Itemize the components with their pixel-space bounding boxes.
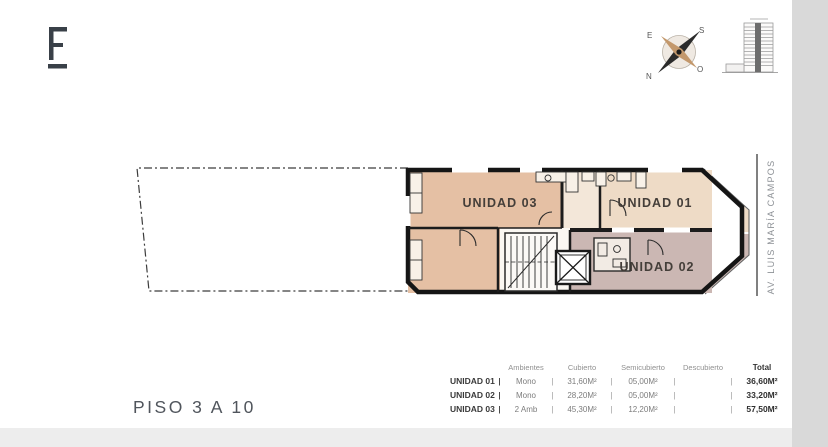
separator: | [606,405,617,414]
unit-02-area [570,230,712,293]
table-row-label: UNIDAD 01 [440,376,494,386]
separator: | [669,377,680,386]
separator: | [669,391,680,400]
separator: | [726,377,737,386]
separator: | [606,377,617,386]
separator: | [494,377,505,386]
balcony-railing-line [704,169,749,294]
cell-cubierto: 28,20M² [558,391,606,400]
separator: | [494,405,505,414]
exterior-wall [408,170,742,292]
table-row-label: UNIDAD 02 [440,390,494,400]
col-header-descubierto: Descubierto [680,363,726,372]
separator: | [547,405,558,414]
floor-label: PISO 3 A 10 [133,397,256,418]
compass-s-label: S [699,26,704,35]
col-header-cubierto: Cubierto [558,363,606,372]
background-gray-right [792,0,828,447]
cell-semicubierto: 12,20M² [617,405,669,414]
interior-walls [408,170,712,292]
separator: | [669,405,680,414]
street-name-label: AV. LUIS MARÍA CAMPOS [766,152,780,302]
unit-02-bathroom [594,238,630,271]
cell-total: 57,50M² [737,404,787,414]
separator: | [547,377,558,386]
cell-ambientes: Mono [505,391,547,400]
door-arcs [460,200,663,255]
compass-n-label: N [646,72,652,81]
col-header-total: Total [737,363,787,372]
unit-01-balcony [703,169,749,232]
stairs [505,233,557,291]
areas-table: Ambientes Cubierto Semicubierto Descubie… [440,360,792,416]
core-area [500,228,570,293]
separator: | [726,391,737,400]
cell-ambientes: Mono [505,377,547,386]
col-header-ambientes: Ambientes [505,363,547,372]
separator: | [494,391,505,400]
building-elevation-icon [722,19,778,73]
service-strip-area [562,170,602,228]
cell-cubierto: 31,60M² [558,377,606,386]
unit-02-balcony [700,234,749,293]
lot-boundary-dashed [137,168,408,291]
cell-total: 36,60M² [737,376,787,386]
unit-01-area [600,170,712,230]
table-row-label: UNIDAD 03 [440,404,494,414]
plan-fixtures [410,172,646,280]
unit-01-label: UNIDAD 01 [618,196,693,210]
compass-rose-icon: E S N O [646,26,704,81]
elevator [556,251,590,284]
cell-semicubierto: 05,00M² [617,391,669,400]
unit-03-area [408,170,568,293]
cell-semicubierto: 05,00M² [617,377,669,386]
cell-total: 33,20M² [737,390,787,400]
compass-o-label: O [697,65,703,74]
background-gray-bottom [0,428,792,447]
brand-logo-icon [48,27,67,69]
cell-ambientes: 2 Amb [505,405,547,414]
cell-cubierto: 45,30M² [558,405,606,414]
col-header-semicubierto: Semicubierto [617,363,669,372]
window-gaps [406,168,691,233]
separator: | [547,391,558,400]
unit-02-label: UNIDAD 02 [620,260,695,274]
separator: | [726,405,737,414]
page: { "compass": { "top_left": "E", "top_rig… [0,0,828,447]
unit-03-label: UNIDAD 03 [463,196,538,210]
compass-e-label: E [647,31,652,40]
separator: | [606,391,617,400]
